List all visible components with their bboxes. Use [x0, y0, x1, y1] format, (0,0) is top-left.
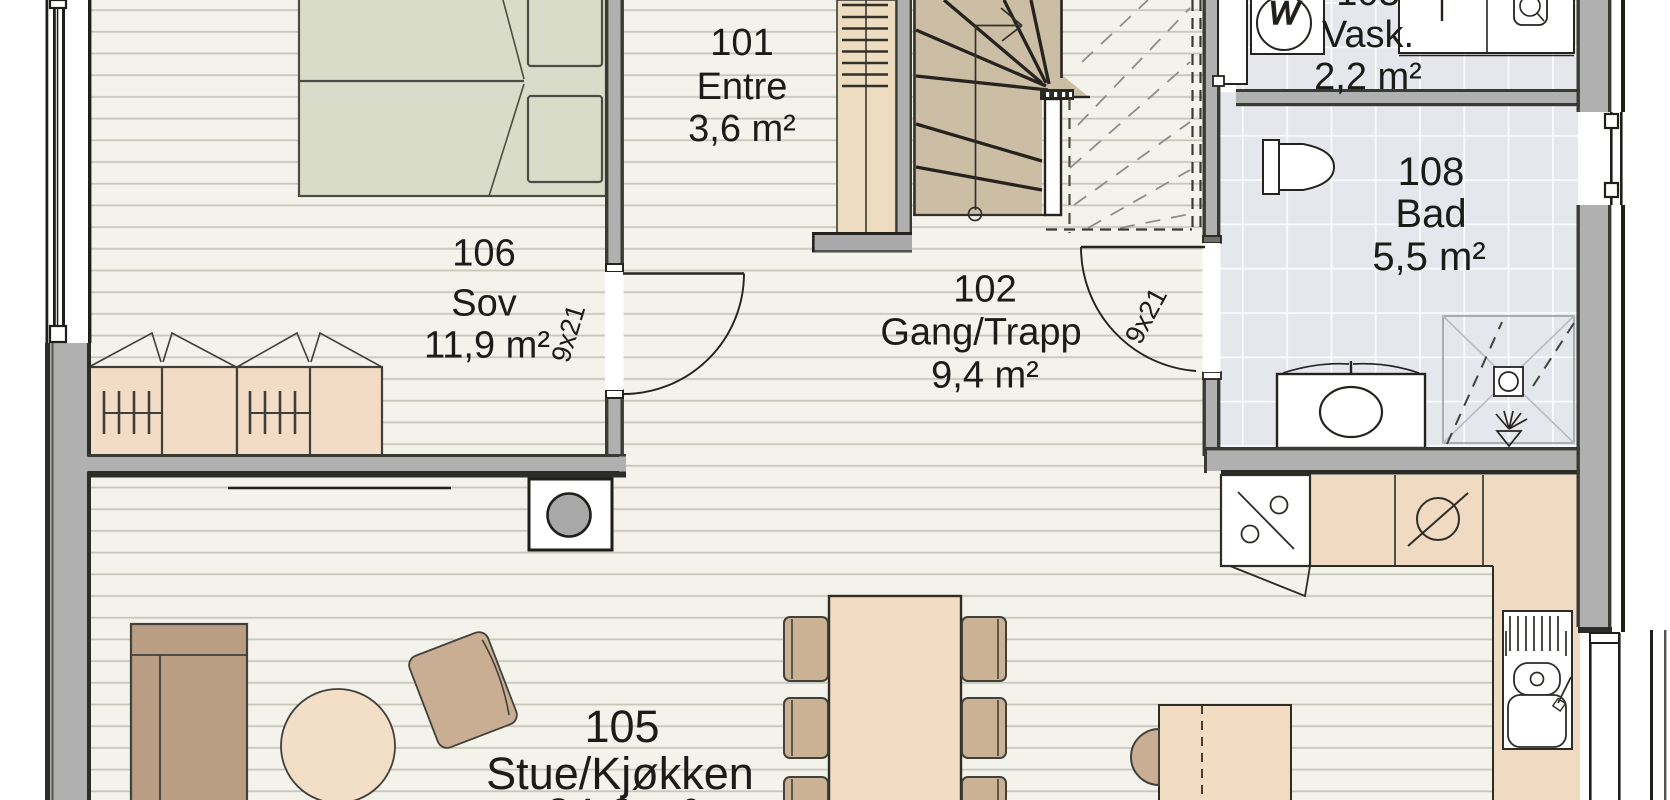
svg-text:106: 106 [452, 233, 515, 275]
svg-text:3,6 m²: 3,6 m² [688, 108, 796, 150]
svg-text:102: 102 [953, 269, 1016, 311]
svg-text:105: 105 [584, 701, 659, 752]
svg-text:Bad: Bad [1395, 192, 1466, 236]
svg-text:Sov: Sov [451, 283, 516, 325]
svg-text:Entre: Entre [697, 66, 788, 108]
svg-text:103: 103 [1336, 0, 1399, 14]
svg-text:11,9 m²: 11,9 m² [424, 325, 550, 367]
svg-text:Vask.: Vask. [1322, 14, 1414, 56]
svg-text:24,6 m²: 24,6 m² [546, 789, 699, 800]
svg-text:9,4 m²: 9,4 m² [931, 355, 1039, 397]
svg-text:108: 108 [1398, 150, 1465, 194]
svg-text:W: W [1269, 0, 1302, 31]
svg-text:2,2 m²: 2,2 m² [1314, 56, 1422, 98]
svg-text:Gang/Trapp: Gang/Trapp [880, 312, 1081, 354]
svg-text:5,5 m²: 5,5 m² [1372, 235, 1485, 279]
svg-text:101: 101 [710, 22, 773, 64]
